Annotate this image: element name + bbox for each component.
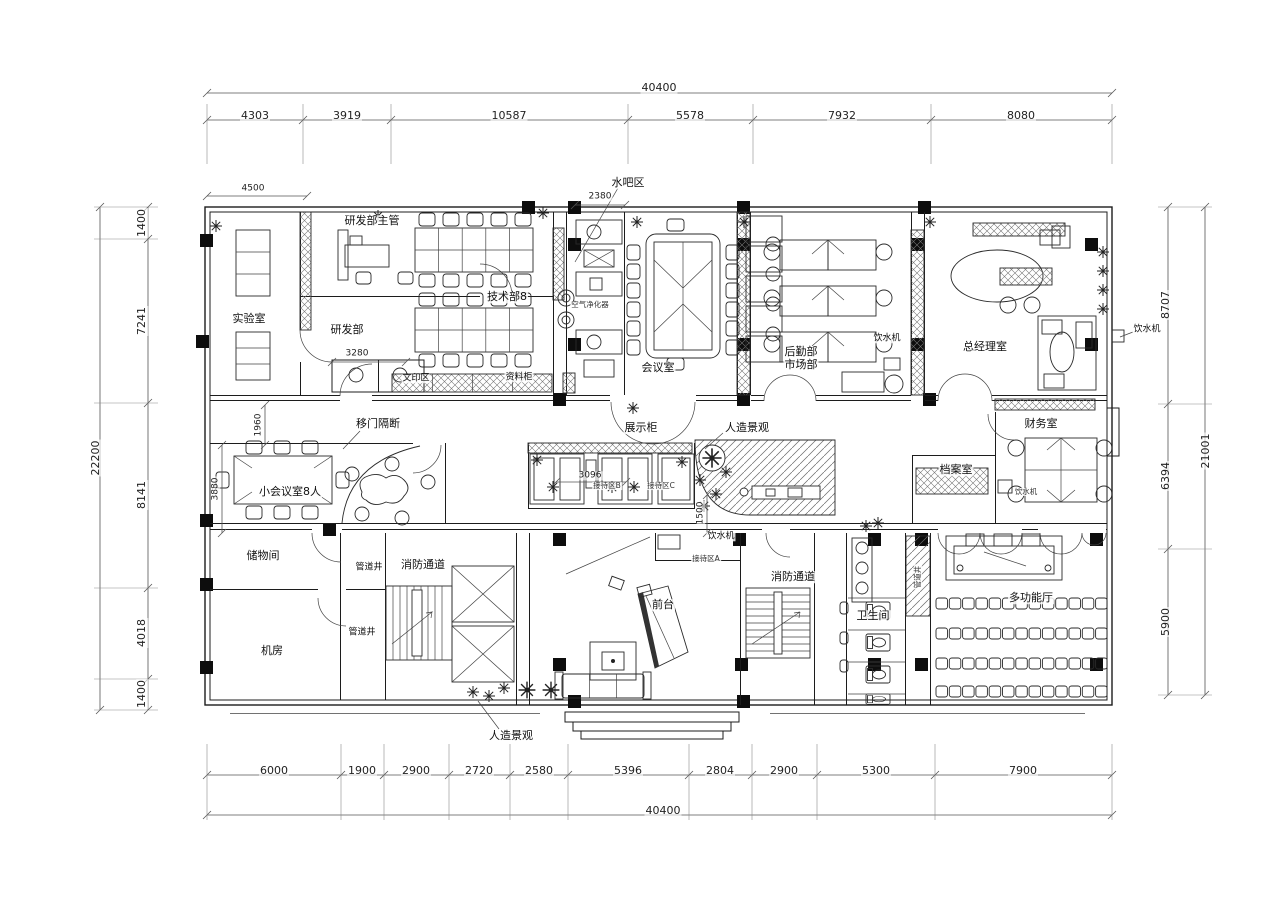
dim-bottom-segment-1: 1900 — [347, 765, 377, 777]
dim-small-meeting-depth: 3880 — [211, 477, 220, 502]
room-label-water-bar: 水吧区 — [611, 177, 646, 189]
label-landscape-bottom: 人造景观 — [488, 730, 534, 742]
dim-bottom-segment-5: 5396 — [613, 765, 643, 777]
dim-left-segment-1: 7241 — [136, 306, 148, 336]
room-label-pipe-shaft-1: 管道井 — [354, 563, 383, 572]
dim-lobby-offset: 1500 — [696, 501, 705, 526]
room-label-archives: 档案室 — [939, 464, 974, 476]
label-air-purifier: 空气净化器 — [570, 301, 610, 309]
room-label-storage: 储物间 — [246, 550, 281, 562]
dim-right-segment-1: 6394 — [1160, 461, 1172, 491]
dim-bottom-segment-4: 2580 — [524, 765, 554, 777]
dim-bottom-segment-0: 6000 — [259, 765, 289, 777]
room-label-marketing: 市场部 — [784, 359, 819, 371]
dim-bottom-segment-9: 7900 — [1008, 765, 1038, 777]
label-reception-b: 接待区B — [592, 482, 622, 490]
dim-corridor-offset: 1960 — [254, 413, 263, 438]
dim-right-segment-0: 8707 — [1160, 290, 1172, 320]
dim-wc-width: 3280 — [345, 349, 370, 358]
room-label-rd-dept: 研发部 — [330, 324, 365, 336]
dim-left-segment-0: 1400 — [136, 208, 148, 238]
room-label-logistics: 后勤部 — [784, 346, 819, 358]
dim-top-segment-2: 10587 — [491, 110, 528, 122]
room-label-front-desk: 前台 — [651, 599, 675, 611]
dim-total-width-bottom: 40400 — [645, 805, 682, 817]
multi-hall-chairs — [936, 598, 1107, 697]
dimension-lines — [100, 93, 1205, 815]
dim-bottom-segment-2: 2900 — [401, 765, 431, 777]
room-label-meeting-room: 会议室 — [641, 362, 676, 374]
dim-total-height-right: 21001 — [1200, 433, 1212, 470]
label-reception-a: 接待区A — [691, 555, 721, 563]
dim-top-segment-0: 4303 — [240, 110, 270, 122]
area-label-file-cabinet: 资料柜 — [504, 373, 533, 382]
room-label-finance: 财务室 — [1024, 418, 1059, 430]
dim-total-height-left: 22200 — [90, 440, 102, 477]
room-label-pipe-shaft-3: 管道井 — [914, 565, 922, 590]
area-label-display-cabinet: 展示柜 — [624, 422, 659, 434]
dim-right-segment-2: 5900 — [1160, 607, 1172, 637]
room-label-restroom: 卫生间 — [856, 610, 891, 622]
dim-left-segment-4: 1400 — [136, 679, 148, 709]
dim-bottom-segment-8: 5300 — [861, 765, 891, 777]
label-sliding-partition: 移门隔断 — [355, 418, 401, 430]
dim-bottom-segment-6: 2804 — [705, 765, 735, 777]
room-label-machine-room: 机房 — [260, 645, 284, 657]
room-label-multi-hall: 多功能厅 — [1008, 592, 1054, 604]
dim-total-width-top: 40400 — [641, 82, 678, 94]
dim-bottom-segment-7: 2900 — [769, 765, 799, 777]
dim-water-bar-width: 2380 — [588, 192, 613, 201]
dim-top-segment-3: 5578 — [675, 110, 705, 122]
room-label-fire-corridor-left: 消防通道 — [400, 559, 446, 571]
extension-lines — [94, 104, 1212, 820]
label-water-dispenser-lobby: 饮水机 — [706, 532, 735, 541]
room-label-tech-dept: 技术部8 — [486, 291, 528, 303]
room-label-small-meeting: 小会议室8人 — [258, 486, 322, 498]
dim-display-width: 3096 — [578, 471, 603, 480]
dim-top-segment-5: 8080 — [1006, 110, 1036, 122]
room-label-rd-supervisor: 研发部主管 — [344, 215, 401, 227]
dim-top-segment-1: 3919 — [332, 110, 362, 122]
area-label-print: 文印区 — [401, 374, 430, 383]
dimension-ticks — [96, 89, 1209, 819]
room-label-fire-corridor-right: 消防通道 — [770, 571, 816, 583]
room-label-pipe-shaft-2: 管道井 — [347, 628, 376, 637]
label-water-dispenser-archives: 饮水机 — [1014, 488, 1039, 496]
label-landscape-mid: 人造景观 — [724, 422, 770, 434]
room-label-gm-office: 总经理室 — [962, 341, 1008, 353]
floorplan-page: 40400 4303 3919 10587 5578 7932 8080 600… — [0, 0, 1280, 905]
dim-bottom-segment-3: 2720 — [464, 765, 494, 777]
label-water-dispenser-logistics: 饮水机 — [872, 334, 901, 343]
dim-top-segment-4: 7932 — [827, 110, 857, 122]
dim-lab-width: 4500 — [241, 184, 266, 193]
label-water-dispenser-right: 饮水机 — [1132, 325, 1161, 334]
room-label-lab: 实验室 — [232, 313, 267, 325]
dim-left-segment-3: 4018 — [136, 618, 148, 648]
label-reception-c: 接待区C — [646, 482, 676, 490]
dim-left-segment-2: 8141 — [136, 480, 148, 510]
